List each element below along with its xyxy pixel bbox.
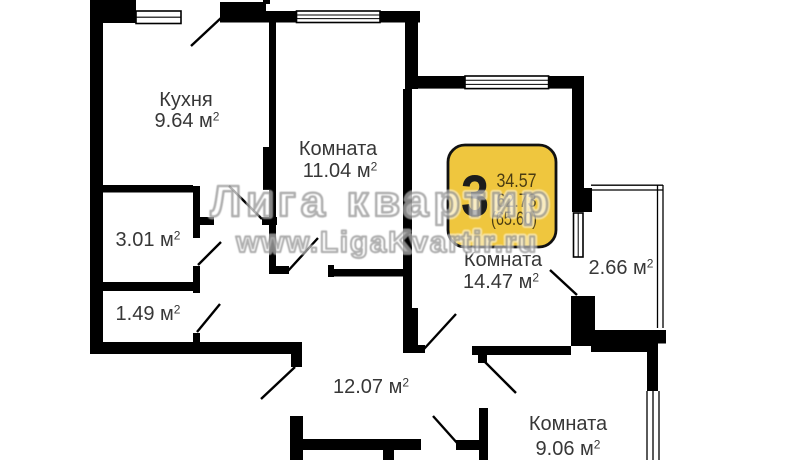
svg-text:Кухня: Кухня — [159, 89, 213, 111]
svg-text:9.64 м2: 9.64 м2 — [155, 110, 220, 133]
svg-text:12.07 м2: 12.07 м2 — [333, 376, 409, 399]
svg-text:2.66 м2: 2.66 м2 — [589, 257, 654, 280]
svg-text:9.06 м2: 9.06 м2 — [536, 438, 601, 460]
svg-text:3.01 м2: 3.01 м2 — [116, 229, 181, 252]
svg-text:Лига квартир: Лига квартир — [211, 177, 554, 226]
svg-text:1.49 м2: 1.49 м2 — [116, 303, 181, 326]
svg-text:www.LigaKvartir.ru: www.LigaKvartir.ru — [235, 226, 538, 259]
svg-text:Комната: Комната — [529, 413, 608, 435]
svg-text:Комната: Комната — [299, 138, 378, 160]
svg-text:14.47 м2: 14.47 м2 — [463, 271, 539, 294]
